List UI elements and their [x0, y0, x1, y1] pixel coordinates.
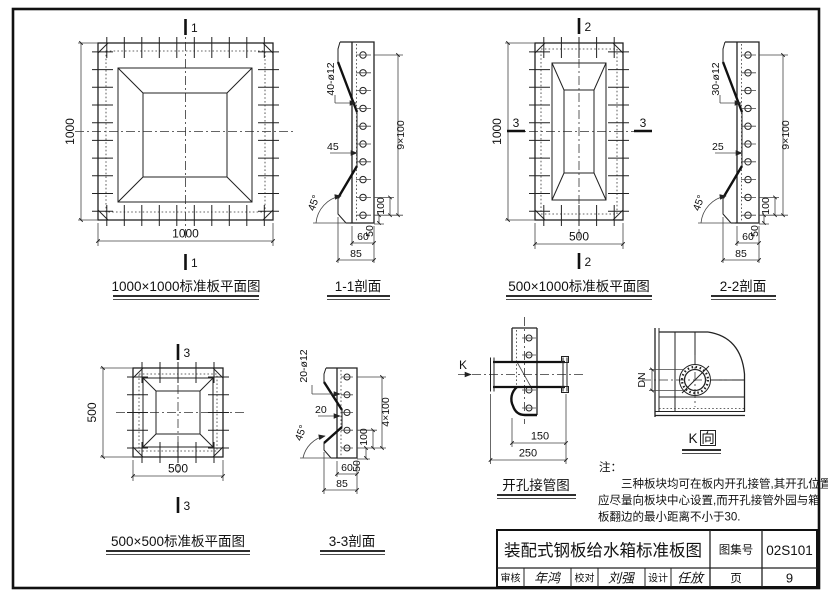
figure-title: 向 [701, 431, 715, 446]
plan-1000x1000: 1000 1000 1 1 1000×1000标准板平面图 [63, 19, 296, 300]
title-block: 装配式钢板给水箱标准板图 图集号 02S101 审核 年鸿 校对 刘强 设计 任… [497, 530, 817, 587]
section-mark: 1 [191, 256, 198, 270]
angle-label: 45° [293, 423, 310, 442]
atlas-number: 02S101 [766, 543, 813, 558]
note-line: 应尽量向板块中心设置,而开孔接管外园与箱 [598, 493, 820, 507]
designer-signature: 任放 [677, 571, 705, 586]
dim-label: 500 [168, 462, 188, 476]
figure-title: 2-2剖面 [720, 279, 767, 294]
atlas-number-label: 图集号 [719, 543, 754, 557]
dim-label: 60 [357, 231, 369, 243]
plan-500x500: 500 500 3 3 500×500标准板平面图 [85, 344, 250, 555]
note-line: 三种板块均可在板内开孔接管,其开孔位置 [621, 477, 828, 491]
holes-label: 40-ø12 [325, 62, 337, 95]
dim-label: 500 [569, 230, 589, 244]
dim-label: 60 [742, 231, 754, 243]
pitch-label: 9×100 [395, 120, 407, 150]
dim-label: 100 [358, 428, 370, 446]
dn-label: DN [636, 372, 648, 387]
dim-label: 60 [341, 462, 353, 474]
reviewer-signature: 年鸿 [534, 571, 562, 586]
section-mark: 2 [585, 20, 592, 34]
dim-label: 1000 [490, 118, 504, 145]
k-view: DN K 向 [636, 328, 745, 454]
view-direction-label: K [459, 358, 467, 372]
note-label: 注： [599, 460, 622, 474]
designer-label: 设计 [648, 572, 668, 585]
drawing-canvas: 1000 1000 1 1 1000×1000标准板平面图 40-ø12 45 … [0, 0, 828, 596]
note-line: 板翻边的最小距离不小于30. [598, 510, 741, 524]
reviewer-label: 审核 [501, 572, 521, 585]
page-label: 页 [730, 573, 742, 585]
offset-label: 20 [315, 404, 327, 416]
section-mark: 3 [184, 499, 191, 513]
drawing-sheet: 1000 1000 1 1 1000×1000标准板平面图 40-ø12 45 … [0, 0, 828, 596]
figure-title: 1-1剖面 [335, 279, 382, 294]
pitch-label: 4×100 [380, 397, 392, 427]
page-number: 9 [786, 571, 793, 586]
holes-label: 30-ø12 [710, 62, 722, 95]
drawing-title: 装配式钢板给水箱标准板图 [504, 541, 702, 560]
figure-title: K [688, 431, 697, 446]
dim-label: 1000 [63, 118, 77, 145]
pitch-label: 9×100 [780, 120, 792, 150]
note-block: 注： 三种板块均可在板内开孔接管,其开孔位置 应尽量向板块中心设置,而开孔接管外… [598, 460, 828, 524]
offset-label: 45 [327, 141, 339, 153]
holes-label: 20-ø12 [298, 349, 310, 382]
section-mark: 3 [640, 116, 647, 130]
section-mark: 3 [513, 116, 520, 130]
section-3-3: 20-ø12 20 4×100 100 50 60 85 45° 3-3剖面 [293, 349, 392, 554]
section-mark: 2 [585, 255, 592, 269]
dim-label: 100 [760, 197, 772, 215]
section-mark: 3 [184, 346, 191, 360]
section-mark: 1 [191, 21, 198, 35]
dim-label: 500 [85, 402, 99, 422]
checker-signature: 刘强 [608, 571, 635, 586]
offset-label: 25 [712, 141, 724, 153]
figure-title: 500×500标准板平面图 [111, 534, 245, 549]
figure-title: 开孔接管图 [502, 477, 570, 493]
figure-title: 500×1000标准板平面图 [508, 279, 649, 294]
dim-label: 85 [336, 478, 348, 490]
dim-label: 85 [350, 248, 362, 260]
figure-title: 3-3剖面 [329, 534, 376, 549]
dim-label: 250 [519, 448, 537, 460]
dim-label: 150 [531, 431, 549, 443]
pipe-connection-detail: K 150 250 开孔接管图 [458, 317, 584, 499]
plan-500x1000: 1000 500 2 2 3 3 500×1000标准板平面图 [490, 18, 652, 300]
dim-label: 1000 [172, 227, 199, 241]
dim-label: 85 [735, 248, 747, 260]
figure-title: 1000×1000标准板平面图 [112, 279, 261, 294]
dim-label: 100 [375, 197, 387, 215]
checker-label: 校对 [575, 572, 595, 585]
